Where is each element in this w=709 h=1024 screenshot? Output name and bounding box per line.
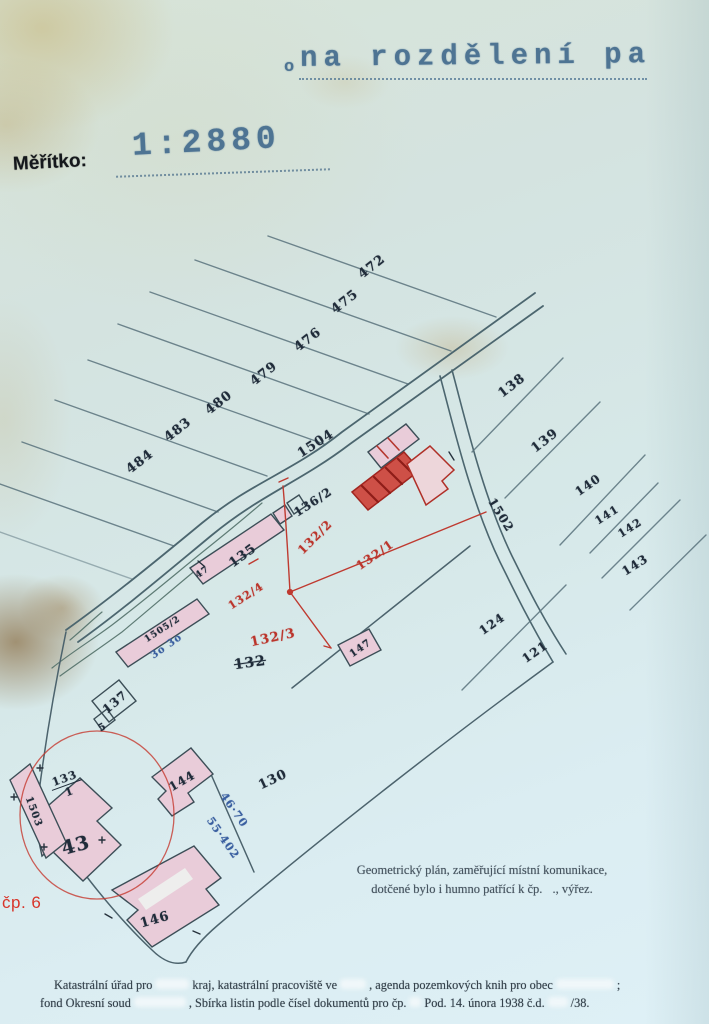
redaction-blur	[548, 997, 568, 1007]
red-survey-node	[288, 590, 293, 595]
caption-line-2: dotčené bylo i humno patřící k čp.., výř…	[336, 880, 628, 899]
footer-l1d: ;	[617, 978, 620, 992]
redaction-blur	[556, 979, 614, 989]
stamp-prefix: o	[284, 58, 294, 77]
footer-line-2: fond Okresní soud, Sbírka listin podle č…	[40, 994, 702, 1012]
fraction-denominator: 1	[63, 785, 75, 798]
caption-line-2b: ., výřez.	[552, 882, 592, 896]
footer-l2a: fond Okresní soud	[40, 996, 131, 1010]
footer-l1b: kraj, katastrální pracoviště ve	[192, 978, 337, 992]
redaction-blur	[340, 979, 366, 989]
footer-l2b: , Sbírka listin podle čísel dokumentů pr…	[189, 996, 407, 1010]
footer-l1a: Katastrální úřad pro	[54, 978, 152, 992]
left-strip-boundaries	[0, 236, 496, 579]
house-number-annotation: čp. 6	[2, 893, 41, 913]
caption-line-2a: dotčené bylo i humno patřící k čp.	[371, 882, 542, 896]
caption-line-1: Geometrický plán, zaměřující místní komu…	[336, 861, 628, 880]
farm-boundaries	[38, 546, 553, 963]
archive-footer: Katastrální úřad prokraj, katastrální pr…	[40, 976, 702, 1013]
redaction-blur	[155, 979, 189, 989]
caption-block: Geometrický plán, zaměřující místní komu…	[336, 861, 628, 900]
footer-l2c: Pod. 14. února 1938 č.d.	[424, 996, 544, 1010]
stamp-dotted-line	[299, 78, 647, 80]
redaction-blur	[409, 997, 421, 1007]
building-146	[112, 846, 221, 947]
red-outlined-building	[407, 446, 454, 505]
footer-l1c: , agenda pozemkových knih pro obec	[369, 978, 553, 992]
scale-label: Měřítko:	[12, 150, 87, 176]
footer-line-1: Katastrální úřad prokraj, katastrální pr…	[40, 976, 702, 994]
scale-value: 1:2880	[131, 120, 282, 165]
footer-l2d: /38.	[571, 996, 590, 1010]
stamp-title: na rozdělení pa	[300, 38, 651, 75]
redaction-blur	[134, 997, 186, 1007]
scanned-cadastral-map: 472 475 476 479 480 483 484 1504 1502 13…	[0, 0, 709, 1024]
